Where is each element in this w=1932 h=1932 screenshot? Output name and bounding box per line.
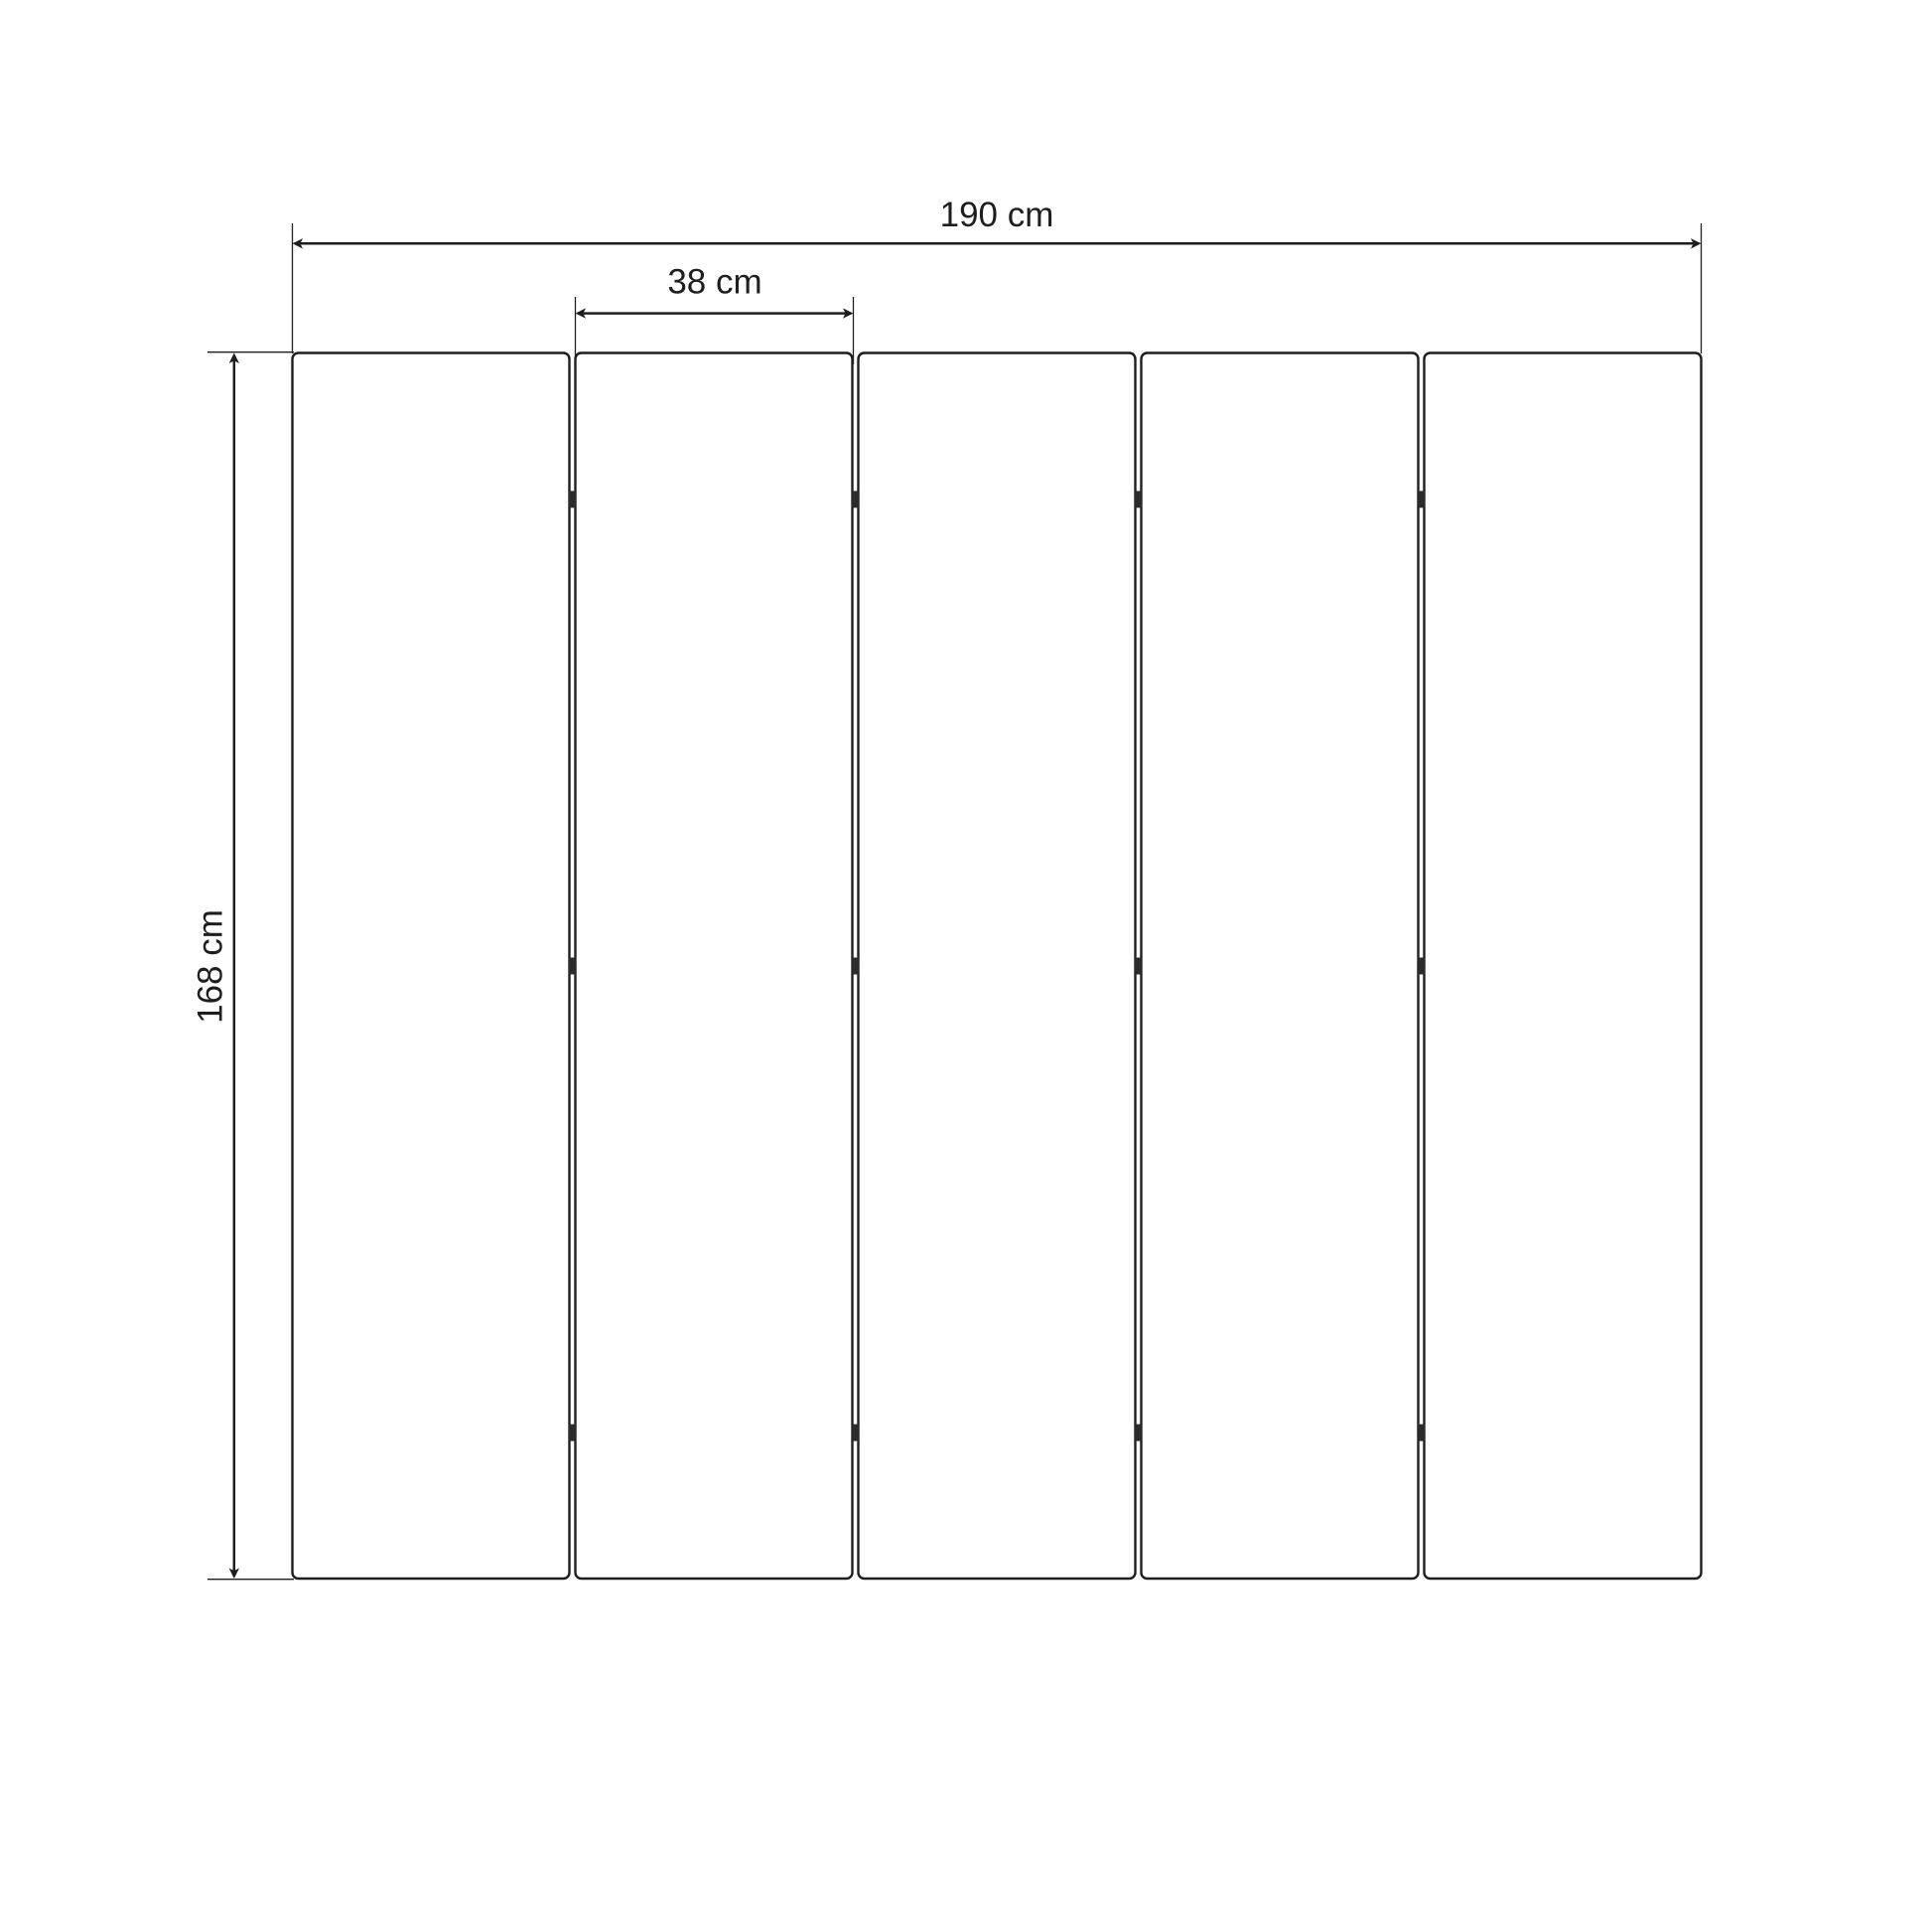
svg-text:190 cm: 190 cm bbox=[940, 196, 1054, 234]
svg-text:38 cm: 38 cm bbox=[667, 263, 761, 302]
svg-text:168 cm: 168 cm bbox=[192, 909, 230, 1024]
